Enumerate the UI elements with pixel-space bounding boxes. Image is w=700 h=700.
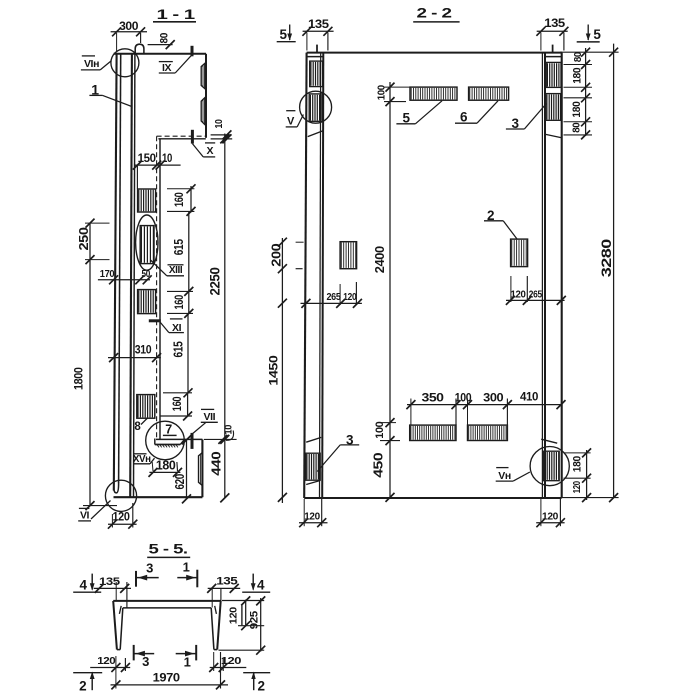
svg-text:1: 1 <box>183 560 190 575</box>
svg-text:180: 180 <box>572 68 584 84</box>
svg-text:80: 80 <box>570 122 582 133</box>
svg-text:350: 350 <box>422 393 444 405</box>
svg-text:120: 120 <box>343 291 356 303</box>
svg-text:120: 120 <box>571 481 583 493</box>
svg-text:120: 120 <box>228 607 240 625</box>
svg-text:265: 265 <box>529 288 542 300</box>
svg-text:4: 4 <box>257 578 265 593</box>
svg-text:200: 200 <box>269 243 283 267</box>
svg-text:3280: 3280 <box>598 238 614 277</box>
svg-text:135: 135 <box>216 576 237 588</box>
svg-text:VI: VI <box>80 510 90 522</box>
svg-text:8: 8 <box>134 421 141 433</box>
svg-text:6: 6 <box>460 109 468 124</box>
svg-text:10: 10 <box>213 119 225 128</box>
svg-text:135: 135 <box>544 18 566 30</box>
svg-text:IX: IX <box>162 62 172 74</box>
svg-text:1970: 1970 <box>153 670 181 684</box>
svg-text:2250: 2250 <box>207 268 222 296</box>
svg-text:3: 3 <box>142 654 149 669</box>
svg-text:180: 180 <box>156 458 176 472</box>
svg-text:5: 5 <box>593 27 601 42</box>
svg-text:5: 5 <box>402 110 410 125</box>
svg-text:120: 120 <box>221 655 242 667</box>
svg-text:Vн: Vн <box>498 470 511 482</box>
svg-text:XIII: XIII <box>169 265 183 276</box>
svg-text:310: 310 <box>135 345 152 357</box>
svg-text:4: 4 <box>79 578 87 593</box>
svg-text:5: 5 <box>279 27 287 42</box>
svg-text:2 - 2: 2 - 2 <box>417 4 453 20</box>
svg-text:10: 10 <box>222 425 234 435</box>
svg-text:100: 100 <box>374 421 386 438</box>
svg-text:180: 180 <box>572 456 584 472</box>
svg-text:120: 120 <box>97 655 116 667</box>
svg-text:180: 180 <box>571 101 583 117</box>
svg-text:160: 160 <box>174 295 186 310</box>
svg-text:VIн: VIн <box>84 58 99 70</box>
svg-text:5 - 5.: 5 - 5. <box>149 542 188 557</box>
svg-text:X: X <box>206 145 213 157</box>
svg-text:170: 170 <box>100 268 115 280</box>
svg-text:160: 160 <box>174 193 186 208</box>
svg-text:1 - 1: 1 - 1 <box>157 6 196 22</box>
svg-text:300: 300 <box>483 393 503 405</box>
svg-text:3: 3 <box>146 561 153 576</box>
svg-text:615: 615 <box>172 239 186 255</box>
svg-text:2: 2 <box>79 679 86 694</box>
svg-text:615: 615 <box>172 341 186 357</box>
svg-text:410: 410 <box>520 392 538 404</box>
svg-text:300: 300 <box>119 19 139 33</box>
svg-text:V: V <box>287 115 295 127</box>
svg-text:2400: 2400 <box>372 246 387 273</box>
svg-text:265: 265 <box>327 291 341 303</box>
svg-text:120: 120 <box>542 511 559 523</box>
svg-text:80: 80 <box>572 52 584 63</box>
svg-text:250: 250 <box>77 227 91 251</box>
svg-text:100: 100 <box>375 85 387 101</box>
svg-text:7: 7 <box>165 423 172 437</box>
svg-text:450: 450 <box>370 453 385 478</box>
svg-text:1800: 1800 <box>73 368 85 391</box>
svg-text:2: 2 <box>257 679 264 694</box>
svg-text:80: 80 <box>158 33 170 44</box>
svg-text:440: 440 <box>209 452 224 476</box>
svg-text:160: 160 <box>172 397 184 412</box>
svg-text:925: 925 <box>249 611 261 629</box>
svg-text:1450: 1450 <box>269 356 281 386</box>
svg-text:VII: VII <box>203 411 215 423</box>
svg-text:10: 10 <box>162 153 172 165</box>
svg-text:135: 135 <box>308 19 330 31</box>
svg-text:1: 1 <box>184 655 191 670</box>
